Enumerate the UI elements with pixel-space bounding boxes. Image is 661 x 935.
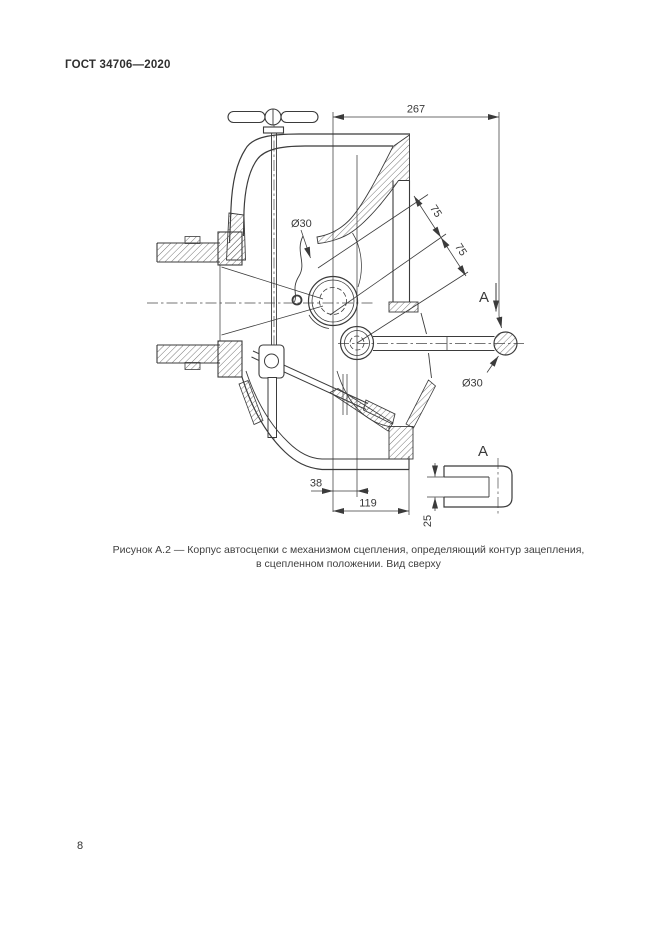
lock-pivot-circles [309, 277, 374, 360]
lifter-rod [252, 345, 396, 438]
dimension-offset-38: 38 [310, 478, 369, 495]
detail-view-a-label: А [478, 443, 488, 460]
dim-75-label-2: 75 [452, 241, 469, 258]
dimension-contour-75: 75 75 [414, 196, 469, 276]
view-arrow-a-label: А [479, 289, 489, 306]
dimension-hole-top: Ø30 [291, 218, 312, 258]
figure-caption-line2: в сцепленном положении. Вид сверху [70, 557, 627, 571]
figure-a2-technical-drawing: 267 [0, 0, 661, 935]
dim-d30-top-label: Ø30 [291, 218, 312, 230]
figure-caption: Рисунок А.2 — Корпус автосцепки с механи… [70, 543, 627, 571]
extension-lines [333, 112, 502, 515]
dim-267-label: 267 [407, 104, 425, 116]
view-arrow-a: А [479, 283, 496, 312]
figure-caption-line1: Рисунок А.2 — Корпус автосцепки с механи… [70, 543, 627, 557]
detail-view-a: А 25 [422, 443, 512, 527]
dim-d30-shaft-label: Ø30 [462, 378, 483, 390]
page-number: 8 [77, 840, 83, 852]
dim-119-label: 119 [359, 498, 377, 510]
dimension-overall-width: 267 [333, 104, 499, 118]
dim-75-label-1: 75 [427, 203, 444, 220]
dim-25-label: 25 [422, 515, 434, 527]
lifter-shaft: Ø30 [373, 332, 517, 390]
document-page: ГОСТ 34706—2020 [0, 0, 661, 935]
dimension-length-119: 119 [333, 498, 409, 512]
centerlines [147, 121, 524, 515]
dim-38-label: 38 [310, 478, 322, 490]
